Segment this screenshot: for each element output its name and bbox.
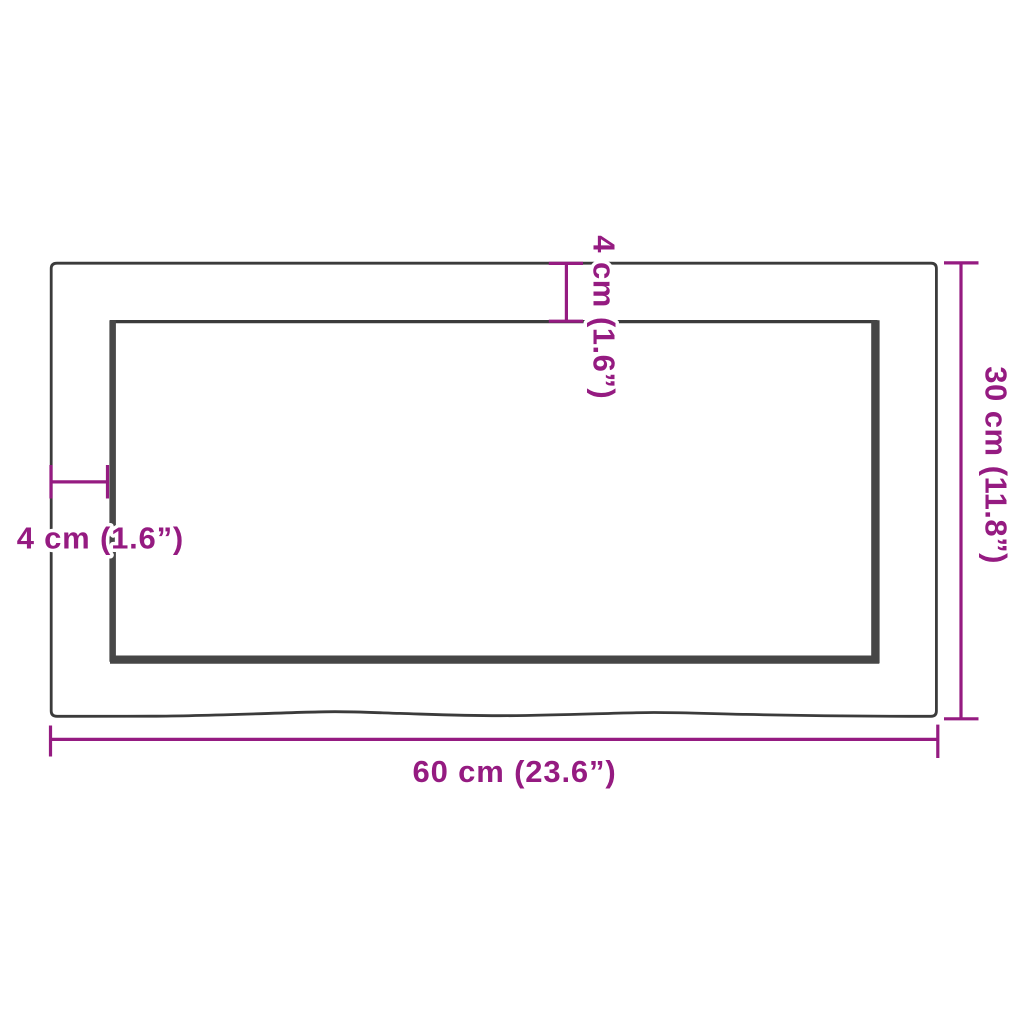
- svg-text:30 cm (11.8”): 30 cm (11.8”): [979, 366, 1014, 564]
- svg-text:60 cm (23.6”): 60 cm (23.6”): [413, 754, 617, 789]
- svg-text:4 cm (1.6”): 4 cm (1.6”): [586, 235, 621, 399]
- svg-text:4 cm (1.6”): 4 cm (1.6”): [17, 521, 184, 556]
